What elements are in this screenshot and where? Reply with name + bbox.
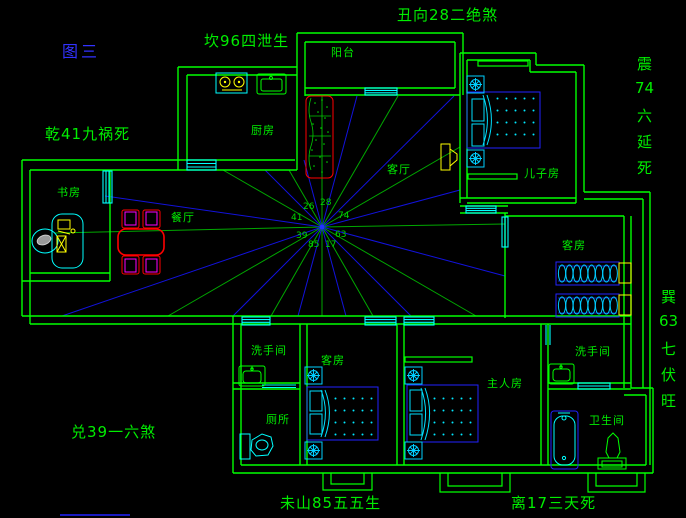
annotation-right-upper: 震 74 六 延 死 [635,53,654,183]
annotation-char: 震 [637,53,652,79]
kitchen-sink-icon [257,74,286,94]
annotation-top: 丑向28二绝煞 [397,8,498,23]
single-bed-icon [556,262,631,285]
compass-number: 85 [308,241,319,250]
nightstand-icon [467,150,484,167]
nightstand-icon [467,76,484,93]
room-label-bathroom: 卫生间 [589,415,625,426]
room-label-balcony: 阳台 [331,47,355,58]
room-label-washroom-west: 洗手间 [251,345,287,356]
desk-icon [32,214,83,268]
compass-number: 41 [291,214,302,223]
room-label-study: 书房 [57,187,81,198]
annotation-right-lower: 巽 63 七 伏 旺 [659,286,678,416]
annotation-char: 伏 [661,364,676,390]
annotation-char: 七 [661,338,676,364]
sink-icon [549,364,574,384]
annotation-char: 六 [637,105,652,131]
double-bed-icon [307,387,378,440]
stove-icon [216,73,247,93]
door-icon [262,385,296,388]
window-icon [502,217,508,247]
room-label-master-room: 主人房 [487,378,523,389]
room-label-kitchen: 厨房 [251,125,275,136]
double-bed-icon [407,385,478,442]
annotation-bottom-left: 兑39一六煞 [71,425,156,440]
toilet-icon [598,433,626,469]
nightstand-icon [405,367,422,384]
floorplan-canvas: 图三 丑向28二绝煞 坎96四泄生 乾41九祸死 兑39一六煞 未山85五五生 … [0,0,686,518]
annotation-upper-left: 坎96四泄生 [204,34,289,49]
annotation-bottom-center: 未山85五五生 [280,496,381,511]
annotation-char: 死 [637,157,652,183]
room-label-washroom-east: 洗手间 [575,346,611,357]
dining-chair-icon [122,210,160,274]
window-icon [365,88,397,95]
room-label-dining-room: 餐厅 [171,212,195,223]
compass-number: 17 [325,241,336,250]
room-label-guest-room-east: 客房 [562,240,586,251]
nightstand-icon [405,442,422,459]
plant-box-icon [306,96,333,178]
bathtub-icon [551,411,578,469]
annotation-bottom-right: 离17三天死 [511,496,596,511]
bay-window [323,473,645,492]
annotation-char: 延 [637,131,652,157]
compass-number: 28 [320,199,331,208]
room-label-toilet: 厕所 [266,414,290,425]
double-bed-icon [467,92,540,148]
window-icon [466,206,496,213]
annotation-char: 63 [659,312,678,338]
annotation-char: 旺 [661,390,676,416]
dining-table-icon [118,210,164,274]
compass-number: 63 [335,231,346,240]
figure-title: 图三 [62,44,100,60]
window-icon [578,383,610,389]
compass-number: 26 [303,203,314,212]
single-bed-icon [556,294,631,317]
compass-number: 74 [338,212,349,221]
toilet-icon [240,434,273,459]
annotation-left: 乾41九祸死 [45,127,130,142]
room-label-living-room: 客厅 [387,164,411,175]
compass-center [320,225,325,230]
window-icon [187,160,216,170]
annotation-char: 74 [635,79,654,105]
room-label-sons-room: 儿子房 [524,168,560,179]
room-label-guest-room-south: 客房 [321,355,345,366]
compass-number: 39 [296,232,307,241]
annotation-char: 巽 [661,286,676,312]
